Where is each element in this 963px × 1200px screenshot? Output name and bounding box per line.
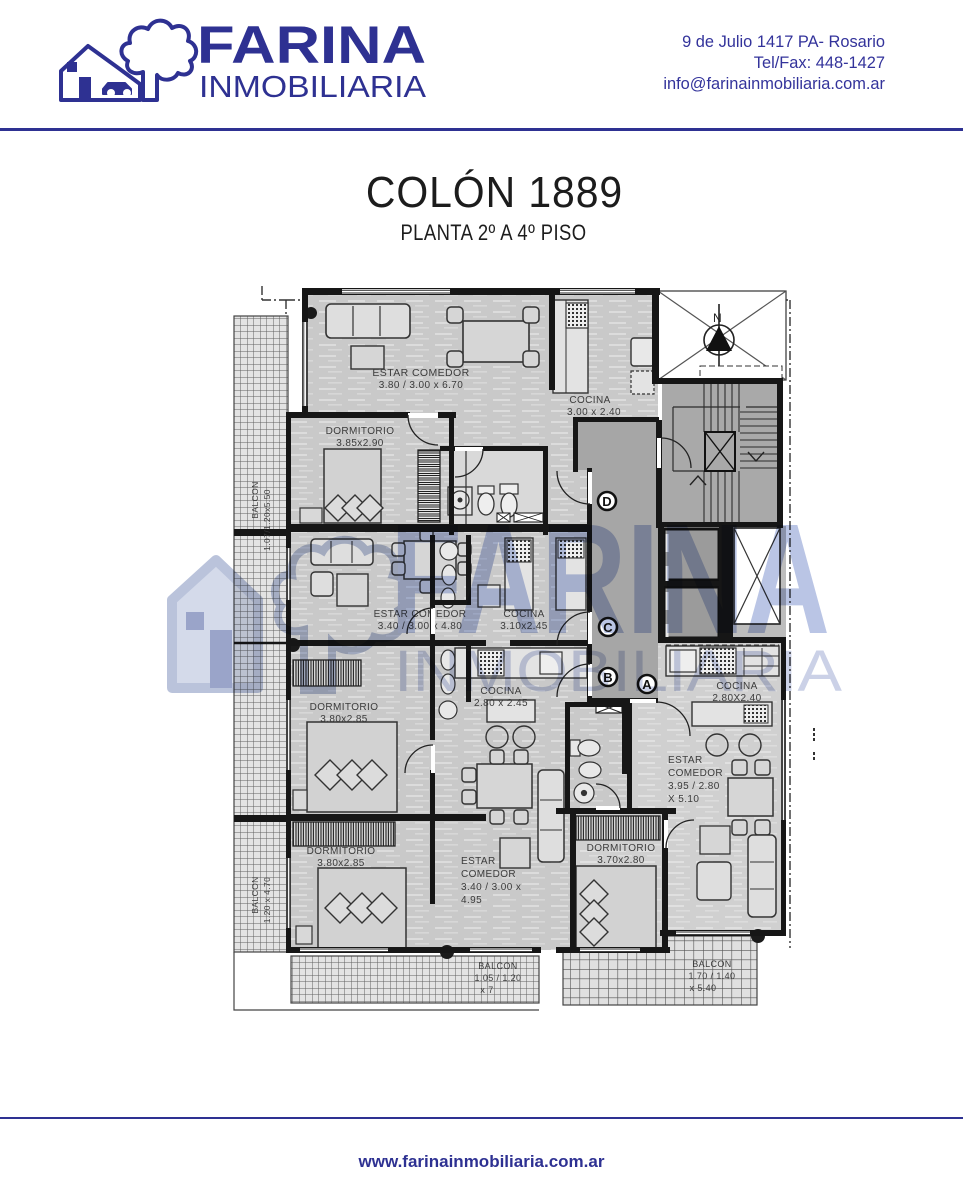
svg-text:INMOBILIARIA: INMOBILIARIA (394, 639, 842, 704)
